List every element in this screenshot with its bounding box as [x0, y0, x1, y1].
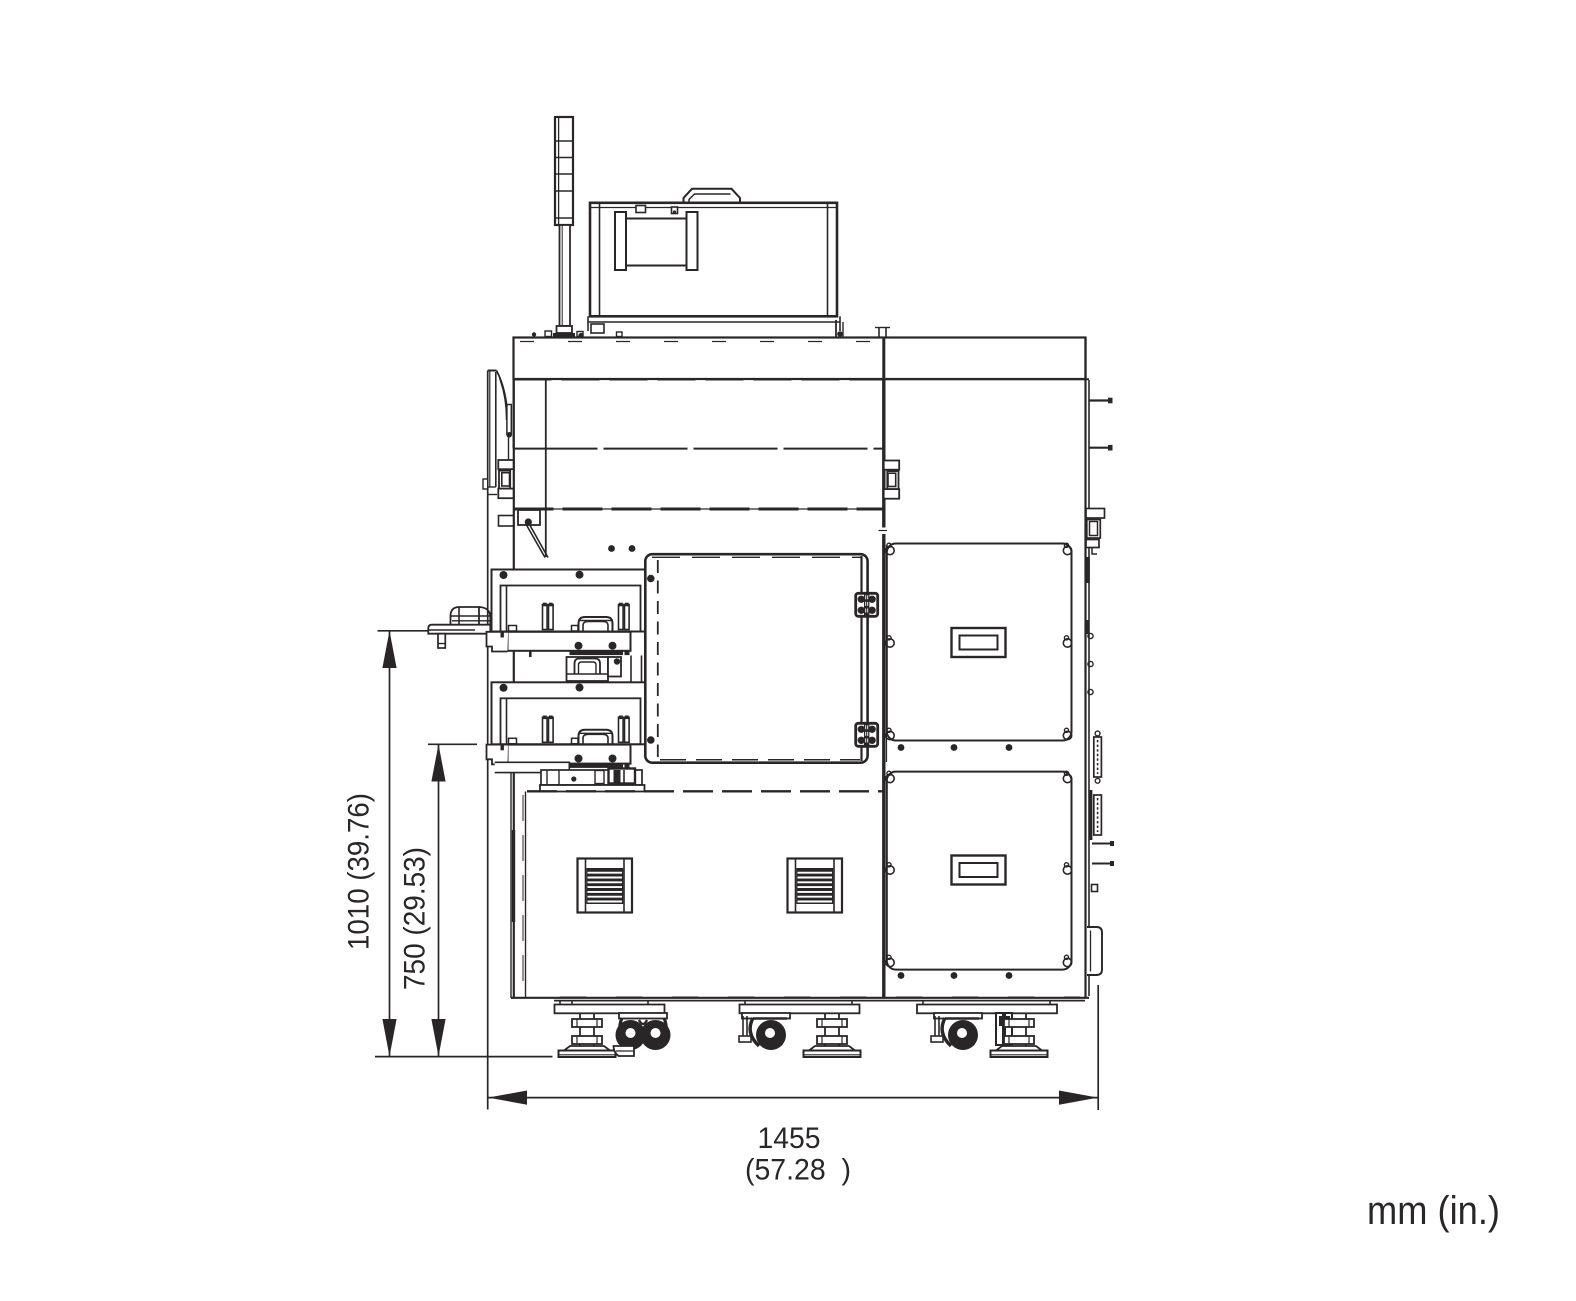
svg-text:(57.28 ): (57.28 )	[745, 1154, 851, 1187]
svg-text:750 (29.53): 750 (29.53)	[399, 847, 432, 990]
svg-text:mm (in.): mm (in.)	[1367, 1189, 1500, 1233]
svg-text:1010 (39.76): 1010 (39.76)	[343, 793, 376, 950]
svg-text:1455: 1455	[758, 1122, 821, 1155]
